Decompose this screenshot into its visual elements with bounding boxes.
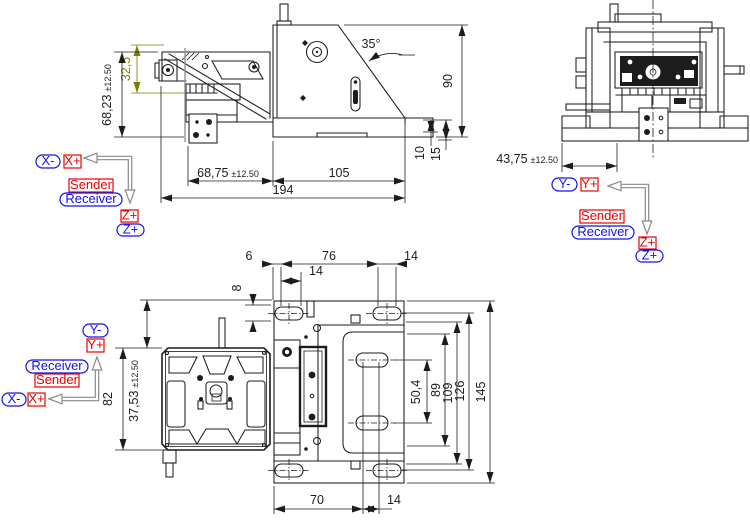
- pocket: [343, 332, 404, 453]
- adapter-plate: [162, 348, 270, 450]
- dim-slot-len-left: 14: [309, 264, 323, 278]
- dim-total-width: 194: [273, 183, 294, 197]
- dim-slot-height: 8: [230, 284, 244, 291]
- rear-view-dimensions: 43,75±12.50: [496, 143, 617, 172]
- dim-plate-offset: 37,53±12.50: [127, 360, 141, 422]
- receiver-label: Receiver: [577, 224, 629, 239]
- carrier-column: [274, 340, 300, 455]
- mount-plate-rear: [639, 108, 668, 141]
- axis-label-x-plus: X+: [28, 391, 44, 406]
- plate-cutouts-top: [169, 356, 263, 374]
- axis-label-z-plus-blue: Z+: [642, 248, 658, 263]
- rear-view-geometry: [562, 0, 748, 158]
- axis-label-y-plus: Y+: [581, 176, 597, 191]
- arrow-head-up: [92, 357, 102, 370]
- arrow-head-left: [49, 394, 62, 404]
- axis-label-x-plus: X+: [64, 153, 80, 168]
- dim-front-angle: 35°: [362, 37, 381, 51]
- rear-view: 43,75±12.50: [496, 0, 748, 172]
- receiver-label: Receiver: [65, 191, 117, 206]
- dim-slot-len-right: 14: [404, 249, 418, 263]
- legend-side-view: X- X+ Sender Receiver Z+ Z+: [36, 153, 144, 237]
- dim-bottom-width: 70: [310, 493, 324, 507]
- arrow-head-left: [608, 181, 621, 191]
- top-post: [610, 4, 618, 22]
- rail-comb: [616, 88, 700, 95]
- sender-label: Sender: [36, 372, 79, 387]
- legend-rear-view: Y- Y+ Sender Receiver Z+ Z+: [552, 176, 663, 263]
- sender-label: Sender: [70, 177, 113, 192]
- top-view-geometry: [162, 301, 408, 514]
- plate-rod: [219, 318, 225, 348]
- dim-body-height: 90: [441, 74, 455, 88]
- dim-bottom-slot: 14: [387, 493, 401, 507]
- dim-right-width: 105: [329, 166, 350, 180]
- dim-total-height: 68,23±12.50: [100, 64, 114, 126]
- mount-plate: [189, 114, 217, 143]
- top-body-outline: [274, 301, 404, 483]
- arrow-head-down: [125, 190, 135, 203]
- plate-foot: [166, 463, 173, 477]
- base-block: [273, 118, 433, 137]
- sender-label: Sender: [581, 208, 624, 223]
- dim-left-width: 68,75±12.50: [197, 166, 259, 180]
- left-column: [586, 28, 610, 112]
- axis-label-y-plus: Y+: [87, 337, 103, 352]
- dim-total-height: 145: [474, 382, 488, 403]
- plate-cutouts-bottom: [169, 429, 265, 444]
- axis-label-y-minus: Y-: [90, 322, 102, 337]
- dim-slot-pitch: 76: [322, 249, 336, 263]
- axis-label-z-plus-blue: Z+: [123, 222, 139, 237]
- dim-plate-height: 82: [101, 392, 115, 406]
- dim-slot-edge: 6: [246, 249, 253, 263]
- axis-label-x-minus: X-: [42, 153, 55, 168]
- top-view: 6 76 14 14 8 50,4 89 109 126 145: [101, 249, 495, 514]
- dim-center-offset: 43,75±12.50: [496, 152, 558, 166]
- top-view-dimensions: 6 76 14 14 8 50,4 89 109 126 145: [101, 249, 495, 514]
- connector-post: [280, 4, 288, 21]
- arrow-head-down: [642, 221, 652, 234]
- axis-label-y-minus: Y-: [559, 176, 571, 191]
- axis-label-x-minus: X-: [8, 391, 21, 406]
- side-view-dimensions: 32,5 68,23±12.50 68,75±12.50 105 194 90 …: [100, 25, 468, 203]
- side-rod: [724, 66, 744, 74]
- dim-slot-row-pitch: 126: [453, 381, 467, 402]
- dim-step-min: 10: [413, 146, 427, 160]
- dim-step-max: 15: [429, 147, 443, 161]
- axis-label-z-plus-red: Z+: [122, 208, 138, 223]
- dim-beam-height: 32,5: [119, 57, 133, 81]
- dim-hole-pitch: 50,4: [409, 380, 423, 404]
- right-column: [700, 28, 724, 112]
- arrow-head-left: [84, 153, 97, 163]
- cad-drawing: 32,5 68,23±12.50 68,75±12.50 105 194 90 …: [0, 0, 750, 522]
- axis-arrow: [619, 186, 647, 221]
- technical-drawing-page: 32,5 68,23±12.50 68,75±12.50 105 194 90 …: [0, 0, 750, 522]
- side-view: 32,5 68,23±12.50 68,75±12.50 105 194 90 …: [100, 4, 468, 203]
- receiver-label: Receiver: [31, 358, 83, 373]
- body-outline: [273, 25, 405, 137]
- legend-top-view: Y- Y+ Receiver Sender X- X+: [2, 322, 108, 406]
